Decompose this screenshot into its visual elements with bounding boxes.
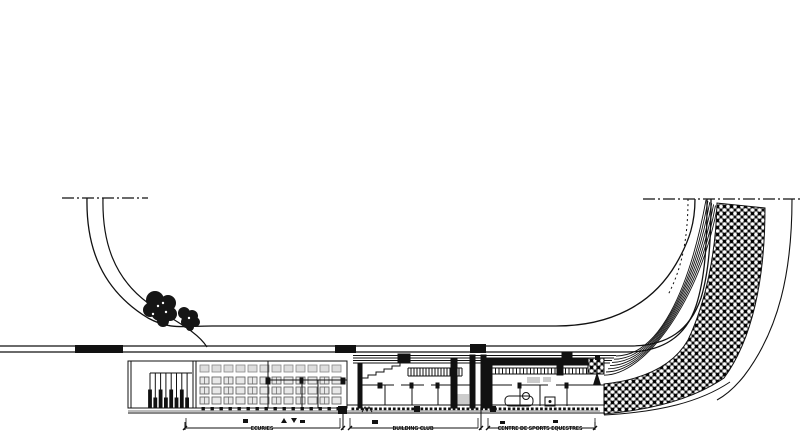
column-dot (453, 408, 455, 410)
column-dot (591, 408, 593, 410)
bleacher-steps (360, 363, 404, 378)
column-dot (403, 408, 405, 410)
column-dot (531, 408, 533, 410)
column-dot (238, 408, 240, 410)
column-dot (582, 408, 584, 410)
furniture-box (332, 387, 341, 394)
furniture-box (272, 365, 281, 372)
tree-speckle (157, 305, 159, 307)
column-dot (467, 408, 469, 410)
site-plan-drawing: ECURIES BUILDING CLUB CENTRE DE SPORTS E… (0, 0, 800, 435)
hatched-landscape-band (604, 203, 765, 414)
stair-foot (180, 390, 183, 408)
furniture-box (236, 387, 245, 394)
tree-canopy (157, 315, 169, 327)
tree-canopy (143, 303, 157, 317)
column-dot (527, 408, 529, 410)
column-dot (319, 408, 321, 410)
column-dot (573, 408, 575, 410)
furniture-box (308, 387, 317, 394)
column-dot (229, 408, 231, 410)
column-dot (522, 408, 524, 410)
stair-foot (170, 390, 173, 408)
column-dot (545, 408, 547, 410)
stair-foot (175, 398, 178, 408)
furniture-box (332, 365, 341, 372)
trees-icon (143, 291, 200, 331)
furniture-box (236, 397, 245, 404)
column-dot (220, 408, 222, 410)
tree-speckle (165, 311, 167, 313)
column-dot (412, 408, 414, 410)
column-dot (426, 408, 428, 410)
building-strip (128, 352, 616, 414)
column-dot (449, 408, 451, 410)
dimension-label-2: BUILDING CLUB (393, 426, 434, 432)
column-dot (375, 408, 377, 410)
column-dot (256, 408, 258, 410)
furniture-box (212, 397, 221, 404)
stair-foot (154, 398, 157, 408)
column-dot (476, 408, 478, 410)
column-dot (283, 408, 285, 410)
furniture-box (212, 365, 221, 372)
column-dot (554, 408, 556, 410)
column-dot (202, 408, 204, 410)
dimension-label-1: ECURIES (251, 426, 274, 432)
column-dot (274, 408, 276, 410)
column-dot (352, 408, 354, 410)
column-dot (328, 408, 330, 410)
column-dot (301, 408, 303, 410)
furniture-box (248, 365, 257, 372)
column-dot (587, 408, 589, 410)
annotation-symbols (243, 418, 558, 424)
furniture-box (212, 387, 221, 394)
furniture-box (224, 365, 233, 372)
dimension-labels: ECURIES BUILDING CLUB CENTRE DE SPORTS E… (251, 426, 583, 432)
furniture-box (236, 377, 245, 384)
tree-canopy (186, 323, 194, 331)
stair-foot (149, 390, 152, 408)
column-dot (458, 408, 460, 410)
column-dot (481, 408, 483, 410)
tree-speckle (162, 302, 164, 304)
column-dot (536, 408, 538, 410)
column-dot (439, 408, 441, 410)
tree-speckle (188, 317, 190, 319)
column-dot (518, 408, 520, 410)
column-dot (393, 408, 395, 410)
furniture-box (308, 397, 317, 404)
column-dot (568, 408, 570, 410)
track-inner-edge (87, 198, 695, 327)
column-dot (435, 408, 437, 410)
column-dot (499, 408, 501, 410)
column-dot (462, 408, 464, 410)
furniture-box (284, 387, 293, 394)
column-dot (550, 408, 552, 410)
furniture-box (332, 397, 341, 404)
column-dot (564, 408, 566, 410)
building-block-c (487, 356, 605, 408)
column-dot (421, 408, 423, 410)
stair-foot (159, 390, 162, 408)
column-dot (513, 408, 515, 410)
column-dot (265, 408, 267, 410)
column-dot (247, 408, 249, 410)
furniture-box (200, 365, 209, 372)
column-dot (211, 408, 213, 410)
column-dot (504, 408, 506, 410)
furniture-box (236, 365, 245, 372)
furniture-box (284, 365, 293, 372)
column-dot (384, 408, 386, 410)
furniture-box (320, 365, 329, 372)
building-block-a (128, 361, 347, 408)
site-plan-page: ECURIES BUILDING CLUB CENTRE DE SPORTS E… (0, 0, 800, 435)
column-dot (541, 408, 543, 410)
column-dot (292, 408, 294, 410)
stair-foot (186, 398, 189, 408)
tree-speckle (152, 313, 154, 315)
column-dot (559, 408, 561, 410)
column-dot (310, 408, 312, 410)
column-dot (398, 408, 400, 410)
dimension-label-3: CENTRE DE SPORTS EQUESTRES (498, 426, 583, 432)
column-dot (357, 408, 359, 410)
colonnade-band (128, 405, 605, 414)
column-dot (508, 408, 510, 410)
column-dot (485, 408, 487, 410)
column-dot (444, 408, 446, 410)
furniture-box (296, 365, 305, 372)
column-dot (577, 408, 579, 410)
furniture-box (284, 397, 293, 404)
column-dot (407, 408, 409, 410)
furniture-box (212, 377, 221, 384)
column-dot (430, 408, 432, 410)
column-dot (380, 408, 382, 410)
stair-foot (165, 398, 168, 408)
column-dot (472, 408, 474, 410)
furniture-box (308, 365, 317, 372)
window-mullions (492, 368, 597, 374)
stair-lines (149, 373, 189, 408)
column-dot (361, 408, 363, 410)
track-straight-lines (0, 199, 711, 352)
column-dot (596, 408, 598, 410)
column-dot (389, 408, 391, 410)
